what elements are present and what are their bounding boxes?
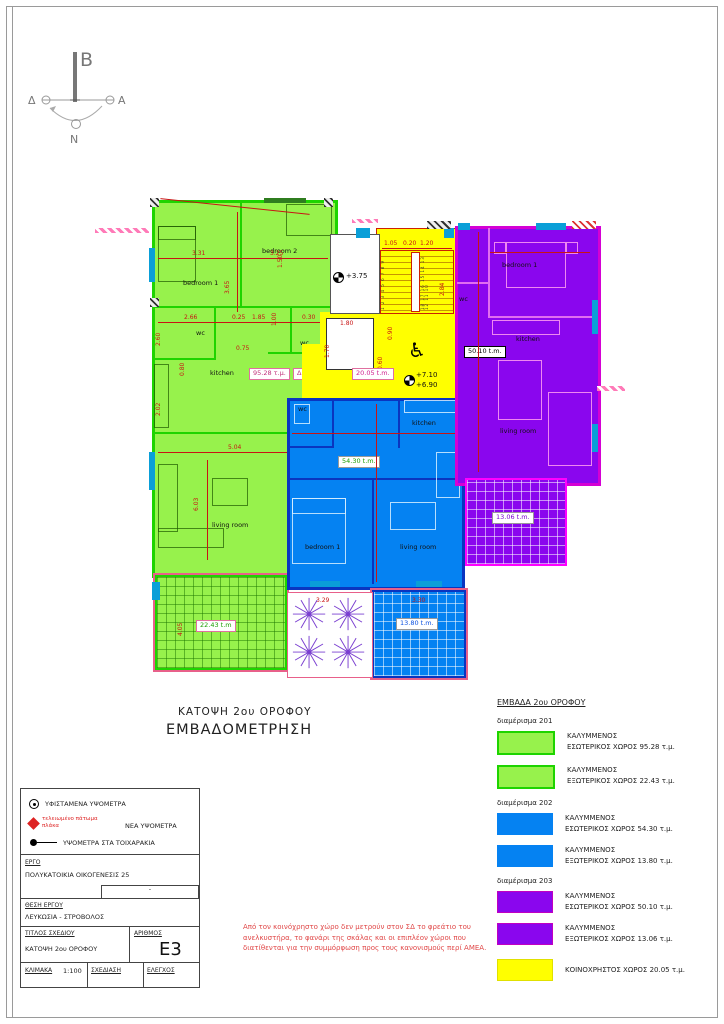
- slab-edge-mark: [352, 219, 378, 223]
- location-value: ΛΕΥΚΩΣΙΑ - ΣΤΡΟΒΟΛΟΣ: [25, 913, 104, 921]
- plan-subtitle: ΕΜΒΑΔΟΜΕΤΡΗΣΗ: [166, 722, 312, 738]
- wall: [488, 316, 593, 318]
- room-label-wc: wc: [196, 330, 205, 337]
- furniture-sofa: [548, 392, 592, 466]
- window-marker: [149, 248, 155, 282]
- compass-north-label: B: [80, 49, 93, 71]
- new-level-note-line1: τελειωμένο πάτωμα: [42, 816, 98, 822]
- plant-icon: [330, 596, 368, 634]
- slab-edge-mark: [95, 228, 149, 233]
- window-marker: [458, 223, 470, 230]
- divider: [87, 963, 88, 987]
- wall-hatch: [150, 298, 159, 307]
- titleblock-location: ΘΕΣΗ ΕΡΓΟΥ ΛΕΥΚΩΣΙΑ - ΣΤΡΟΒΟΛΟΣ: [20, 898, 200, 928]
- legend-item: ΚΑΛΥΜΜΕΝΟΣ ΕΞΩΤΕΡΙΚΟΣ ΧΩΡΟΣ 13.80 τ.μ.: [497, 845, 713, 867]
- dimension-line: [158, 258, 328, 259]
- window-marker: [416, 581, 442, 587]
- symbols-key-item1: ΥΦΙΣΤΑΜΕΝΑ ΥΨΟΜΕΤΡΑ: [45, 800, 126, 808]
- window-marker: [592, 300, 598, 334]
- wall: [332, 400, 334, 446]
- window-marker: [356, 228, 370, 238]
- drawing-title-value: ΚΑΤΟΨΗ 2ου ΟΡΟΦΟΥ: [25, 945, 97, 953]
- window-marker: [149, 452, 155, 490]
- dimension-label: 0.25: [232, 315, 245, 321]
- furniture-kitchen-counter: [492, 320, 560, 335]
- checked-label: ΕΛΕΓΧΟΣ: [147, 967, 175, 974]
- furniture-kitchen-counter: [154, 364, 169, 428]
- drawing-title-label: ΤΙΤΛΟΣ ΣΧΕΔΙΟΥ: [25, 930, 75, 937]
- legend-item: ΚΑΛΥΜΜΕΝΟΣ ΕΣΩΤΕΡΙΚΟΣ ΧΩΡΟΣ 95.28 τ.μ.: [497, 731, 713, 755]
- project-value: ΠΟΛΥΚΑΤΟΙΚΙΑ ΟΙΚΟΓΕΝΕΣΙΣ 25: [25, 871, 129, 879]
- dimension-label: 1.85: [252, 315, 265, 321]
- symbols-key-box: ΥΦΙΣΤΑΜΕΝΑ ΥΨΟΜΕΤΡΑ τελειωμένο πάτωμα πλ…: [20, 788, 200, 856]
- furniture-sofa: [158, 464, 178, 532]
- icon-dot: [33, 803, 36, 806]
- wall: [398, 400, 400, 448]
- legend: ΕΜΒΑΔΑ 2ου ΟΡΟΦΟΥ διαμέρισμα 201 ΚΑΛΥΜΜΕ…: [497, 698, 713, 991]
- room-label-living: living room: [400, 544, 436, 551]
- legend-item: ΚΑΛΥΜΜΕΝΟΣ ΕΞΩΤΕΡΙΚΟΣ ΧΩΡΟΣ 13.06 τ.μ.: [497, 923, 713, 945]
- dimension-line: [478, 232, 479, 472]
- dimension-label: 0.20: [403, 241, 416, 247]
- wall: [290, 306, 292, 354]
- wall-level-icon: [30, 839, 37, 846]
- wall: [290, 446, 334, 448]
- furniture-dining-table: [498, 360, 542, 420]
- new-level-note-line2: πλάκα: [42, 823, 59, 829]
- drafted-label: ΣΧΕΔΙΑΣΗ: [91, 967, 121, 974]
- legend-item: ΚΑΛΥΜΜΕΝΟΣ ΕΞΩΤΕΡΙΚΟΣ ΧΩΡΟΣ 22.43 τ.μ.: [497, 765, 713, 789]
- plan-title: ΚΑΤΟΨΗ 2ου ΟΡΟΦΟΥ: [178, 706, 312, 718]
- plant-icon: [330, 634, 368, 672]
- balcony-area-202: 13.80 t.m.: [396, 618, 438, 630]
- dimension-label: 0.75: [236, 346, 249, 352]
- dimension-label: 1.80: [340, 321, 353, 327]
- dimension-label: 0.30: [302, 315, 315, 321]
- new-level-icon: [27, 817, 40, 830]
- sheet-border-inner: [12, 6, 13, 1017]
- level-new-1: +7.10: [416, 372, 437, 379]
- wall: [457, 282, 490, 284]
- project-label: ΕΡΓΟ: [25, 859, 40, 866]
- level-existing: +3.75: [346, 273, 367, 280]
- legend-text: ΕΞΩΤΕΡΙΚΟΣ ΧΩΡΟΣ 22.43 τ.μ.: [567, 776, 675, 787]
- stair-numbers-right: 18 17 16 15 14 13 12 11 10: [421, 254, 429, 310]
- legend-item: ΚΑΛΥΜΜΕΝΟΣ ΕΣΩΤΕΡΙΚΟΣ ΧΩΡΟΣ 54.30 τ.μ.: [497, 813, 713, 835]
- benchmark-icon: [404, 375, 415, 386]
- area-label-203: 50.10 t.m.: [464, 346, 506, 358]
- common-area-label: 20.05 t.m.: [352, 368, 394, 380]
- window-marker: [444, 228, 454, 238]
- window-marker: [310, 581, 340, 587]
- dimension-line: [376, 404, 377, 582]
- furniture-table: [212, 478, 248, 506]
- dimension-label: 4.05: [178, 623, 184, 636]
- legend-group-203: διαμέρισμα 203: [497, 877, 713, 885]
- room-label-wc: wc: [459, 296, 468, 303]
- furniture-kitchen-counter: [404, 400, 460, 413]
- wall: [240, 202, 242, 308]
- titleblock-drawing-title: ΤΙΤΛΟΣ ΣΧΕΔΙΟΥ ΚΑΤΟΨΗ 2ου ΟΡΟΦΟΥ ΑΡΙΘΜΟΣ…: [20, 926, 200, 964]
- wall-hatch: [150, 198, 159, 207]
- balcony-area-201: 22.43 t.m: [196, 620, 236, 632]
- window-marker: [536, 223, 566, 230]
- legend-group-202: διαμέρισμα 202: [497, 799, 713, 807]
- level-new-2: +6.90: [416, 382, 437, 389]
- dimension-label: 1.20: [420, 241, 433, 247]
- dimension-line: [158, 322, 328, 323]
- legend-text: ΕΞΩΤΕΡΙΚΟΣ ΧΩΡΟΣ 13.06 τ.μ.: [565, 934, 673, 945]
- stair-stringer: [411, 252, 420, 312]
- dimension-label: 0.80: [180, 363, 186, 376]
- number-label: ΑΡΙΘΜΟΣ: [134, 930, 162, 937]
- wheelchair-icon: ♿: [408, 340, 426, 360]
- benchmark-icon: [333, 272, 344, 283]
- room-label-wc: wc: [298, 406, 307, 413]
- legend-text: ΚΑΛΥΜΜΕΝΟΣ: [565, 845, 673, 856]
- wall: [488, 228, 490, 318]
- legend-text: ΚΑΛΥΜΜΕΝΟΣ: [565, 891, 673, 902]
- dimension-label: 2.66: [184, 315, 197, 321]
- furniture-sofa: [390, 502, 436, 530]
- compass-east-label: A: [118, 94, 126, 107]
- legend-text: ΕΣΩΤΕΡΙΚΟΣ ΧΩΡΟΣ 95.28 τ.μ.: [567, 742, 675, 753]
- wall-hatch: [324, 198, 333, 207]
- legend-swatch-201-interior: [497, 731, 555, 755]
- room-label-bedroom1: bedroom 1: [183, 280, 218, 287]
- window-marker: [152, 582, 160, 600]
- titleblock-scale-row: ΚΛΙΜΑΚΑ 1:100 ΣΧΕΔΙΑΣΗ ΕΛΕΓΧΟΣ: [20, 962, 200, 988]
- furniture-pillow: [158, 226, 196, 240]
- legend-text: ΚΑΛΥΜΜΕΝΟΣ: [567, 765, 675, 776]
- slab-edge-mark: [597, 386, 625, 391]
- room-label-bedroom1: bedroom 1: [502, 262, 537, 269]
- slab-hatch: [427, 221, 451, 229]
- plant-icon: [291, 596, 329, 634]
- legend-text: ΚΑΛΥΜΜΕΝΟΣ: [565, 923, 673, 934]
- room-label-kitchen: kitchen: [210, 370, 234, 377]
- legend-group-201: διαμέρισμα 201: [497, 717, 713, 725]
- compass-south-label: N: [70, 133, 78, 146]
- wall: [154, 358, 216, 360]
- dimension-line: [207, 460, 208, 560]
- area-tag-201: 95.28 τ.μ.: [249, 368, 290, 380]
- common-area-corridor: [302, 344, 322, 398]
- room-label-bedroom1: bedroom 1: [305, 544, 340, 551]
- legend-text: ΚΑΛΥΜΜΕΝΟΣ: [565, 813, 673, 824]
- legend-item-common: ΚΟΙΝΟΧΡΗΣΤΟΣ ΧΩΡΟΣ 20.05 τ.μ.: [497, 959, 713, 981]
- project-extra-box: -: [101, 885, 199, 899]
- room-label-living: living room: [500, 428, 536, 435]
- drawing-sheet: B Δ A N bedroom 1 bedroom 2 wc wc kitche…: [0, 0, 724, 1024]
- furniture-bed: [286, 204, 332, 236]
- dimension-label: 5.04: [228, 445, 241, 451]
- divider: [129, 927, 130, 963]
- room-label-living: living room: [212, 522, 248, 529]
- dimension-line: [237, 212, 238, 312]
- dimension-label: 6.03: [194, 498, 200, 511]
- symbols-key-item3: ΥΨΟΜΕΤΡΑ ΣΤΑ ΤΟΙΧΑΡΑΚΙΑ: [63, 839, 155, 847]
- legend-swatch-common: [497, 959, 553, 981]
- legend-header: ΕΜΒΑΔΑ 2ου ΟΡΟΦΟΥ: [497, 698, 713, 707]
- scale-value: 1:100: [63, 967, 82, 975]
- area-label-202: 54.30 t.m.: [338, 456, 380, 468]
- dimension-line: [382, 248, 452, 249]
- dimension-label: 3.31: [192, 251, 205, 257]
- legend-swatch-203-exterior: [497, 923, 553, 945]
- dimension-label: 1.00: [272, 313, 278, 326]
- regulation-note: Από τον κοινόχρηστο χώρο δεν μετρούν στο…: [243, 922, 495, 954]
- legend-swatch-202-exterior: [497, 845, 553, 867]
- dimension-label: 2.60: [156, 333, 162, 346]
- drawing-number: E3: [159, 939, 182, 960]
- dimension-label: 0.90: [388, 327, 394, 340]
- balcony-area-203: 13.06 t.m.: [492, 512, 534, 524]
- furniture-pillow: [292, 498, 346, 514]
- legend-swatch-203-interior: [497, 891, 553, 913]
- plant-icon: [291, 634, 329, 672]
- stair-numbers-left: 1 2 3 4 5 6 7 8 9: [381, 254, 385, 310]
- legend-text: ΚΟΙΝΟΧΡΗΣΤΟΣ ΧΩΡΟΣ 20.05 τ.μ.: [565, 965, 685, 976]
- divider: [143, 963, 144, 987]
- wall: [214, 306, 216, 360]
- room-label-kitchen: kitchen: [516, 336, 540, 343]
- legend-text: ΕΣΩΤΕΡΙΚΟΣ ΧΩΡΟΣ 54.30 τ.μ.: [565, 824, 673, 835]
- legend-text: ΕΣΩΤΕΡΙΚΟΣ ΧΩΡΟΣ 50.10 τ.μ.: [565, 902, 673, 913]
- dimension-label: 2.84: [440, 283, 446, 296]
- legend-text: ΚΑΛΥΜΜΕΝΟΣ: [567, 731, 675, 742]
- titleblock-project: ΕΡΓΟ ΠΟΛΥΚΑΤΟΙΚΙΑ ΟΙΚΟΓΕΝΕΣΙΣ 25 -: [20, 854, 200, 900]
- window-lintel: [264, 198, 306, 203]
- dimension-label: 1.70: [325, 345, 331, 358]
- wall: [290, 478, 458, 480]
- scale-label: ΚΛΙΜΑΚΑ: [25, 967, 52, 974]
- legend-item: ΚΑΛΥΜΜΕΝΟΣ ΕΣΩΤΕΡΙΚΟΣ ΧΩΡΟΣ 50.10 τ.μ.: [497, 891, 713, 913]
- existing-level-icon: [29, 799, 39, 809]
- new-level-note: τελειωμένο πάτωμα πλάκα: [42, 816, 98, 830]
- slab-hatch: [572, 221, 596, 229]
- legend-text: ΕΞΩΤΕΡΙΚΟΣ ΧΩΡΟΣ 13.80 τ.μ.: [565, 856, 673, 867]
- location-label: ΘΕΣΗ ΕΡΓΟΥ: [25, 902, 63, 909]
- furniture-sofa: [158, 528, 224, 548]
- dimension-label: 3.65: [225, 281, 231, 294]
- dimension-label: 1.50: [278, 255, 284, 268]
- dimension-label: 2.02: [156, 403, 162, 416]
- north-compass: B Δ A N: [20, 42, 132, 150]
- dimension-label: 1.05: [384, 241, 397, 247]
- wall: [154, 306, 332, 308]
- icon-line: [37, 842, 57, 843]
- window-marker: [592, 424, 598, 452]
- legend-swatch-202-interior: [497, 813, 553, 835]
- legend-swatch-201-exterior: [497, 765, 555, 789]
- room-label-kitchen: kitchen: [412, 420, 436, 427]
- dimension-label: 3.30: [412, 598, 425, 604]
- symbols-key-item2: ΝΕΑ ΥΨΟΜΕΤΡΑ: [125, 822, 177, 830]
- wall: [372, 480, 374, 584]
- dimension-line: [490, 252, 590, 253]
- compass-west-label: Δ: [28, 94, 36, 107]
